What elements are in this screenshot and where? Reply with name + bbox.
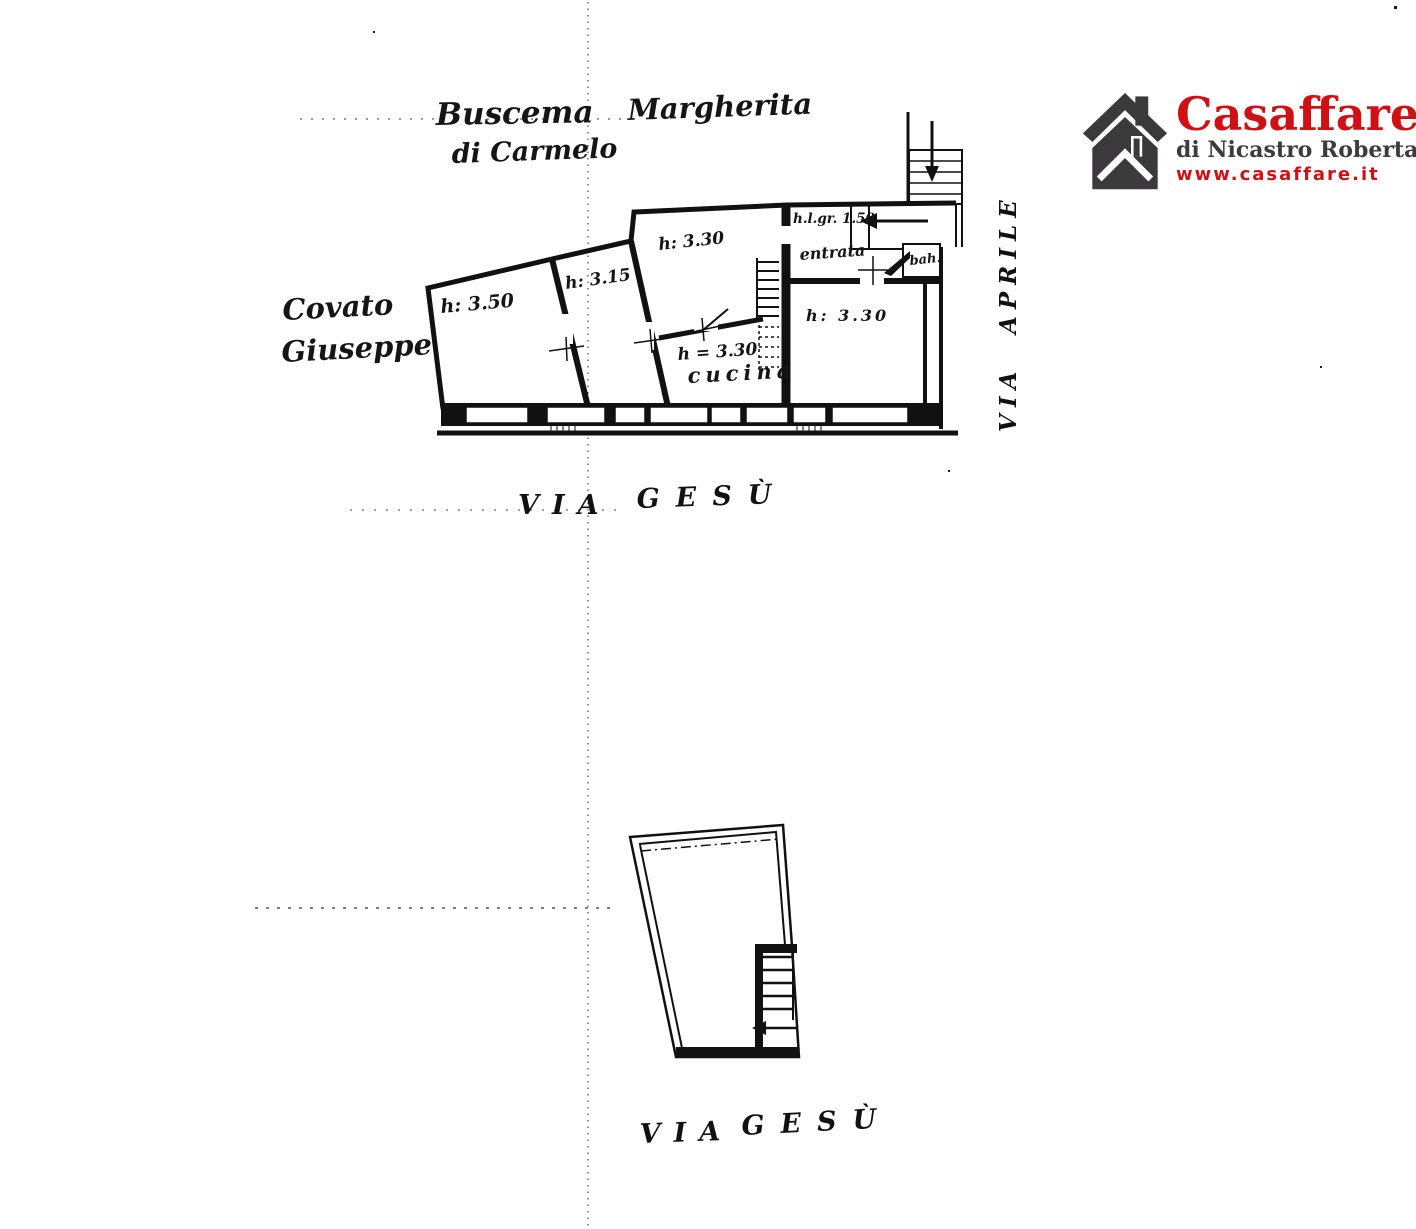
- lower-plan: [630, 825, 799, 1058]
- side-street-word2: APRILE: [995, 193, 1022, 336]
- kitchen-label: cucina: [687, 357, 796, 388]
- construction-lines: [255, 2, 625, 1227]
- room-second-height: h: 3.15: [564, 265, 632, 294]
- owner-name-last: Margherita: [626, 87, 813, 127]
- logo-text-block: Casaffare di Nicastro Roberta www.casaff…: [1176, 92, 1416, 185]
- room-right-height: h: 3.30: [806, 306, 889, 325]
- lower-staircase: [676, 944, 799, 1058]
- main-street-word2: GESÙ: [636, 476, 788, 515]
- entry-stair-flag: [884, 251, 910, 276]
- scan-speckles: [373, 6, 1397, 472]
- side-street-word1: VIA: [995, 365, 1022, 432]
- internal-staircase: [757, 258, 779, 369]
- lower-street-word1: VIA: [639, 1116, 734, 1150]
- stair-down-arrow: [925, 121, 939, 182]
- external-staircase: [908, 112, 962, 247]
- neighbor-last: Giuseppe: [281, 327, 433, 369]
- lower-plan-dashdot: [641, 839, 779, 851]
- side-street: VIA APRILE: [995, 193, 1022, 432]
- agency-logo: Casaffare di Nicastro Roberta www.casaff…: [1082, 92, 1416, 192]
- room-middle-height: h: 3.30: [657, 228, 725, 255]
- street-labels: VIA GESÙ VIA APRILE VIA GESÙ: [518, 193, 1022, 1150]
- entry-height-note: h.l.gr. 1.50: [793, 211, 876, 227]
- owner-line2: di Carmelo: [451, 133, 618, 170]
- neighbor-first: Covato: [282, 287, 394, 327]
- handwritten-labels: Buscema Margherita di Carmelo Covato Giu…: [281, 87, 942, 388]
- entry-label: entrata: [799, 240, 866, 264]
- owner-name-first: Buscema: [435, 94, 594, 133]
- logo-brand: Casaffare: [1176, 92, 1416, 136]
- main-street-word1: VIA: [518, 490, 612, 521]
- lower-street-word2: GESÙ: [741, 1100, 893, 1142]
- lower-plan-outer-wall: [630, 825, 799, 1057]
- kitchen-wall: [659, 309, 763, 341]
- house-icon: [1082, 92, 1168, 192]
- logo-subtitle: di Nicastro Roberta: [1176, 138, 1416, 162]
- bath-label: bah.: [909, 251, 942, 269]
- window-band: [437, 403, 958, 433]
- logo-website: www.casaffare.it: [1176, 165, 1416, 185]
- divider-wall-2: [631, 241, 669, 407]
- room-left-height: h: 3.50: [440, 290, 515, 318]
- right-double-wall: [925, 247, 941, 429]
